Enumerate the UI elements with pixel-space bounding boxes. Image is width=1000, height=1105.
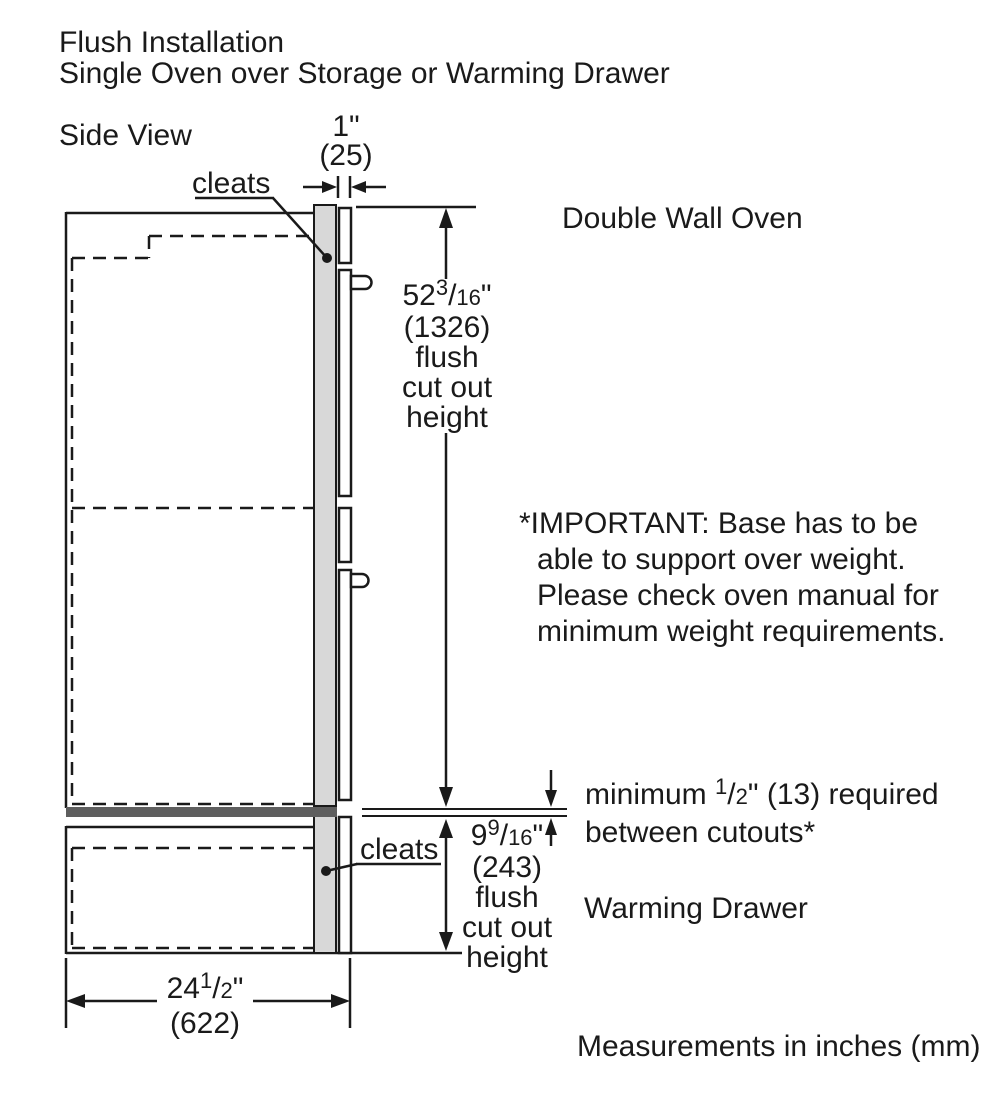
important-note-line3: Please check oven manual for	[519, 578, 945, 614]
oven-middle-trim	[339, 508, 351, 562]
cleats-label-bottom: cleats	[360, 834, 438, 865]
cleats-bottom-leader-dot	[321, 866, 331, 876]
important-note-line2: able to support over weight.	[519, 542, 945, 578]
drawer-front-panel	[339, 817, 351, 953]
important-note-line1: *IMPORTANT: Base has to be	[519, 506, 945, 542]
trim-overlap-mm: (25)	[296, 141, 396, 170]
page-title-line2: Single Oven over Storage or Warming Draw…	[59, 58, 670, 89]
drawer-cutout-value: 99/16"	[450, 821, 564, 853]
cabinet-width-mm: (622)	[152, 1007, 258, 1040]
trim-dim-arrow-right-icon	[322, 181, 337, 193]
warming-drawer-label: Warming Drawer	[584, 893, 808, 924]
cleats-label-top: cleats	[192, 168, 270, 199]
drawer-cutout-desc-1: flush	[450, 883, 564, 913]
cleats-callout-top	[195, 198, 332, 263]
oven-upper-door-handle	[351, 276, 372, 289]
oven-dim-arrow-up-icon	[439, 208, 453, 228]
cleats-top-leader-dot	[322, 253, 332, 263]
width-dim-arrow-left-icon	[66, 994, 85, 1008]
lower-cleat-panel	[314, 816, 336, 953]
base-support-bar	[66, 807, 337, 817]
oven-cutout-mm: (1326)	[390, 313, 504, 343]
width-dim-arrow-right-icon	[331, 994, 350, 1008]
page-title: Flush Installation Single Oven over Stor…	[59, 27, 670, 89]
important-note-line4: minimum weight requirements.	[519, 614, 945, 650]
page-title-line1: Flush Installation	[59, 27, 670, 58]
footer-note: Measurements in inches (mm)	[577, 1031, 980, 1062]
view-label: Side View	[59, 120, 192, 151]
drawer-cutout-desc-3: height	[450, 943, 564, 973]
oven-lower-door	[339, 570, 351, 800]
oven-cutout-dimension-label: 523/16" (1326) flush cut out height	[390, 281, 504, 433]
oven-lower-door-handle	[351, 574, 369, 587]
dim-trim-overlap	[303, 176, 386, 198]
min-gap-note-line1: minimum 1/2" (13) required	[585, 779, 939, 812]
drawer-cutout-desc-2: cut out	[450, 913, 564, 943]
trim-overlap-dimension-label: 1" (25)	[296, 112, 396, 170]
oven-control-panel	[339, 208, 351, 263]
hidden-cutout-lines	[72, 236, 314, 948]
cabinet-width-dimension-label: 241/2" (622)	[152, 972, 258, 1040]
oven-upper-door	[339, 270, 351, 496]
oven-cutout-desc-1: flush	[390, 343, 504, 373]
oven-dim-arrow-down-icon	[439, 787, 453, 807]
min-gap-note-line2: between cutouts*	[585, 817, 815, 848]
important-note: *IMPORTANT: Base has to be able to suppo…	[519, 506, 945, 650]
gap-arrow-down-icon	[545, 790, 557, 807]
drawer-cutout-mm: (243)	[450, 853, 564, 883]
double-wall-oven-label: Double Wall Oven	[562, 203, 803, 234]
oven-cutout-desc-2: cut out	[390, 373, 504, 403]
oven-cutout-desc-3: height	[390, 403, 504, 433]
oven-trim-panels	[339, 208, 372, 800]
oven-cutout-value: 523/16"	[390, 281, 504, 313]
upper-cleat-panel	[314, 205, 336, 806]
trim-overlap-inches: 1"	[296, 112, 396, 141]
installation-spec-page: Flush Installation Single Oven over Stor…	[0, 0, 1000, 1105]
drawer-cutout-dimension-label: 99/16" (243) flush cut out height	[450, 821, 564, 973]
cabinet-width-value: 241/2"	[152, 972, 258, 1007]
trim-dim-arrow-left-icon	[351, 181, 366, 193]
